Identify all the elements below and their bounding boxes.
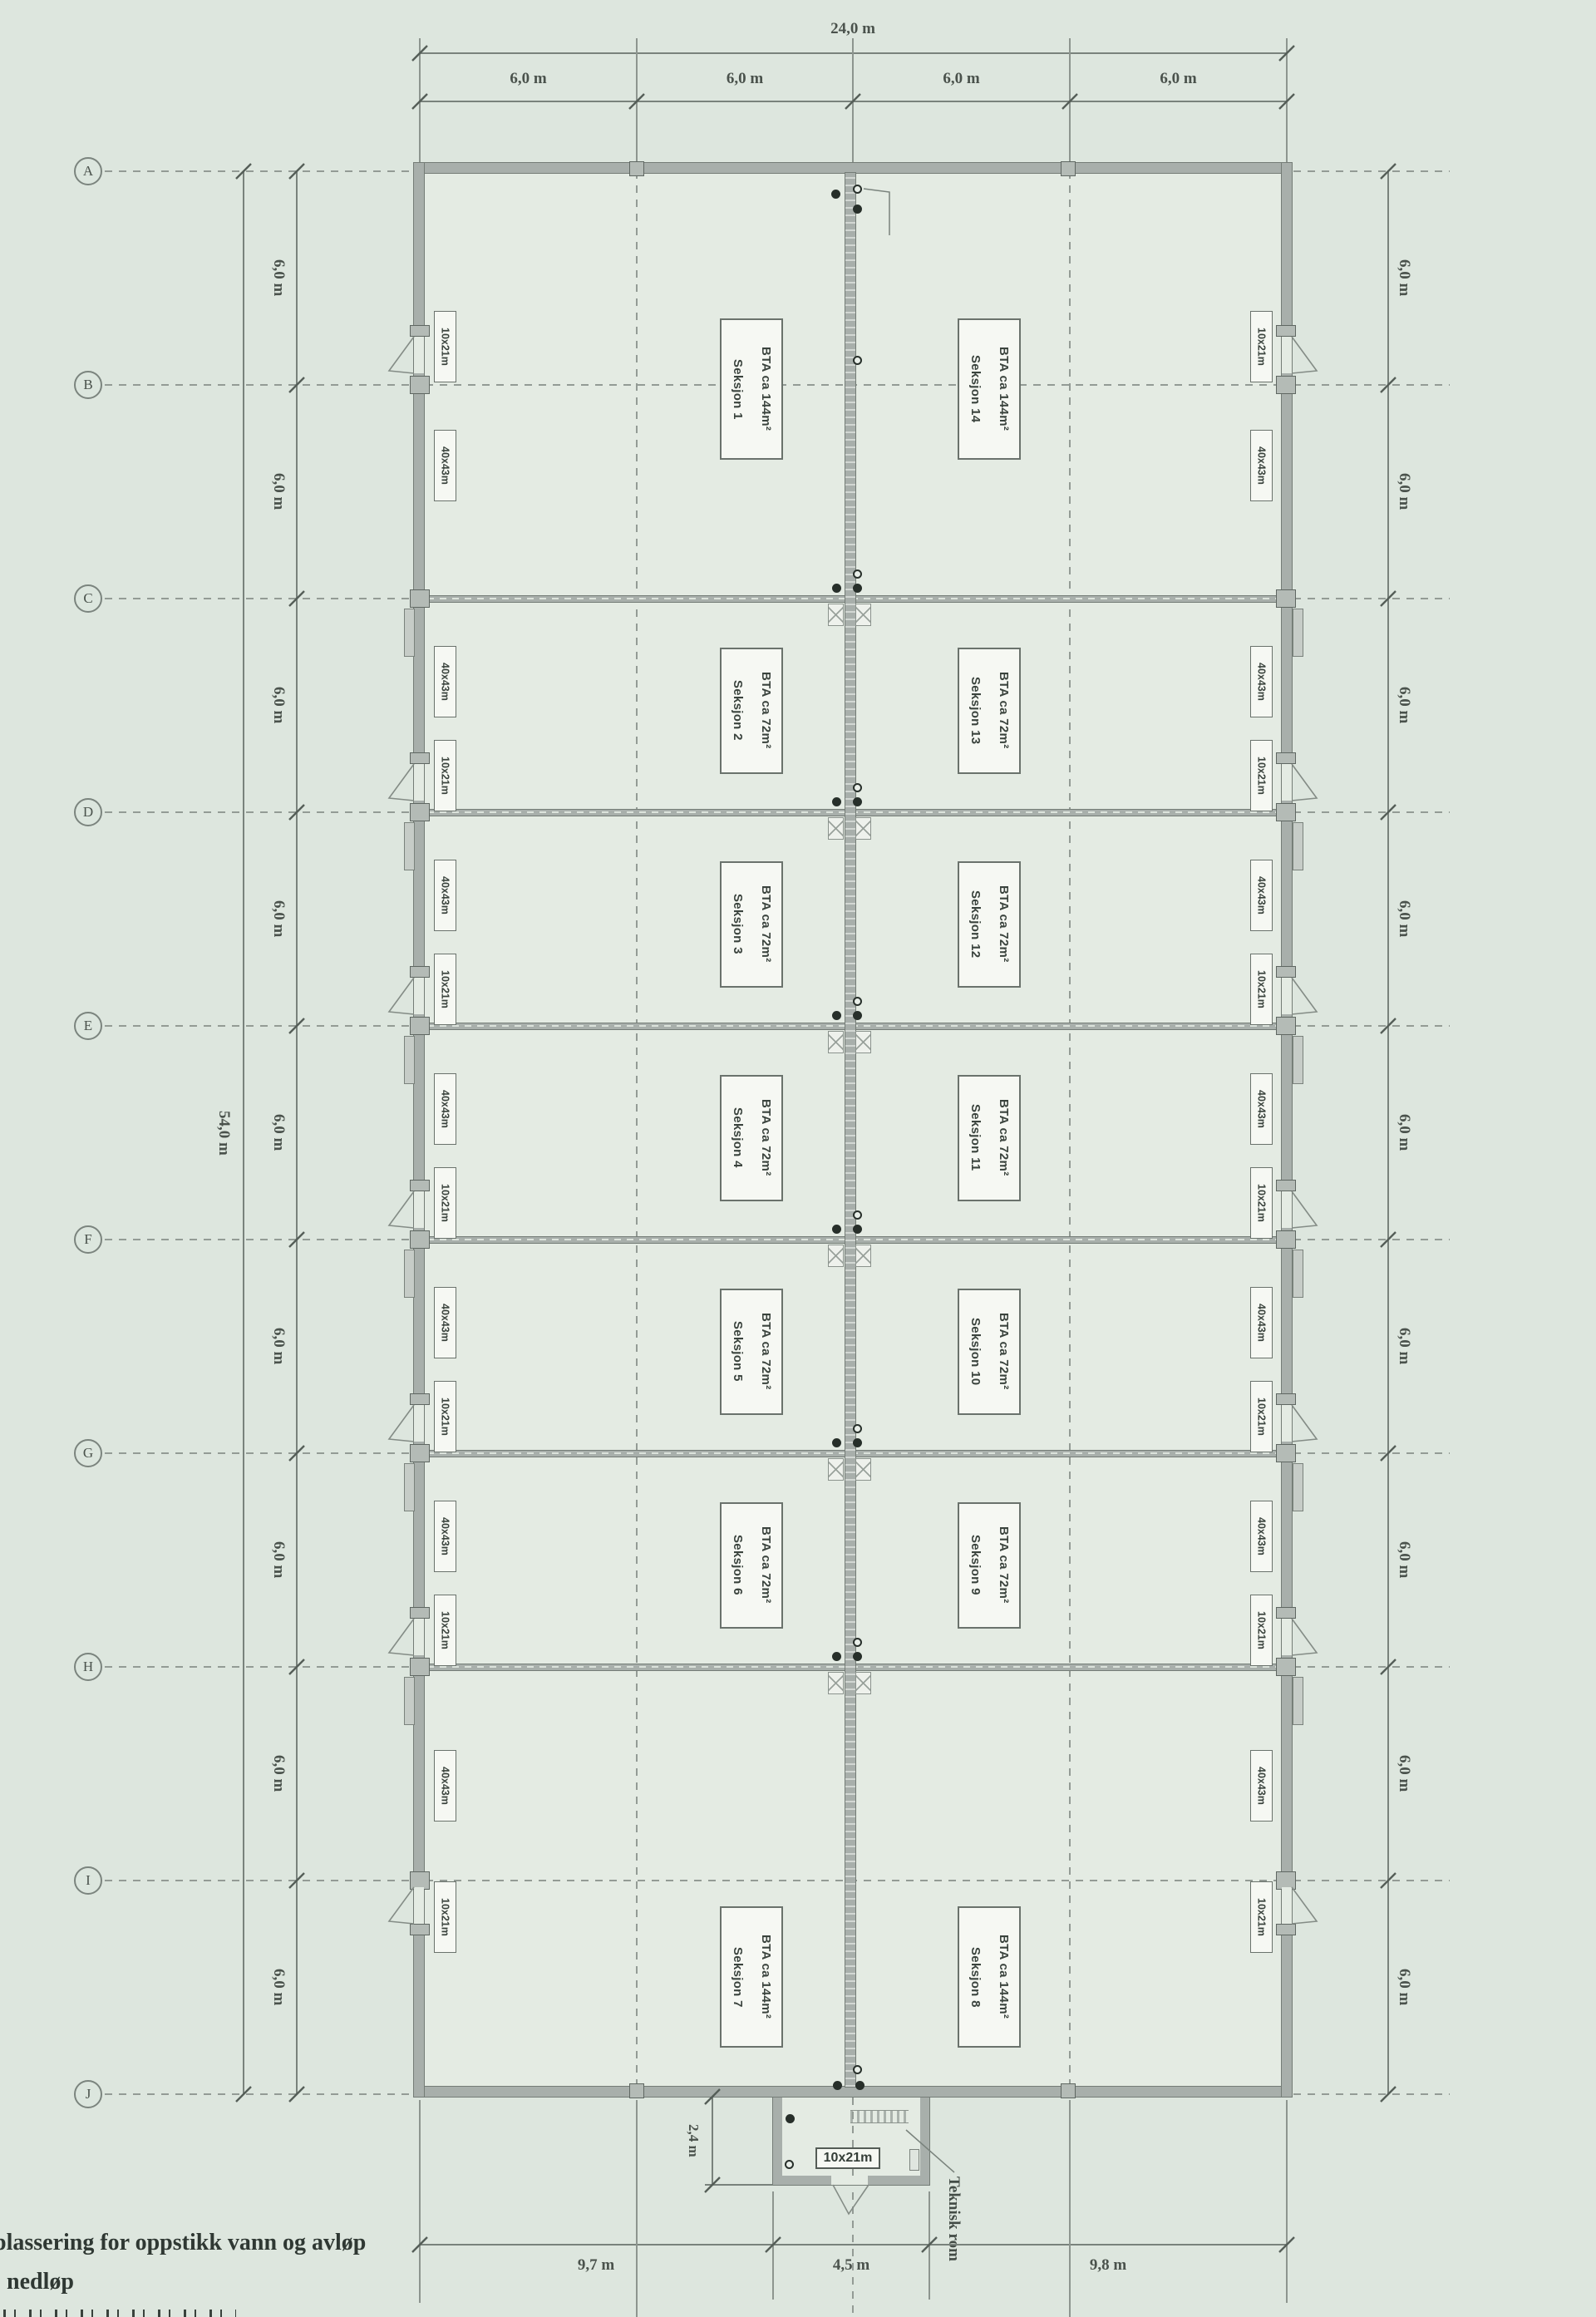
dim-line-left-bays xyxy=(296,171,298,2094)
door-size-label: 10x21m xyxy=(1250,1167,1273,1239)
gate-size-label: 40x43m xyxy=(1250,1750,1273,1822)
teknisk-rom-door-opening xyxy=(831,2176,868,2185)
door-jamb xyxy=(1276,1393,1296,1405)
door-swing-icon xyxy=(1292,1887,1317,1924)
grid-line-stub-right xyxy=(1293,1452,1450,1454)
dim-right-bay: 6,0 m xyxy=(1395,674,1415,737)
oppstikk-dot-icon xyxy=(786,2114,795,2123)
door-jamb xyxy=(410,1393,430,1405)
door-jamb xyxy=(410,1607,430,1619)
facade-panel xyxy=(404,1250,415,1298)
extension-line-bottom xyxy=(929,2191,930,2300)
section-label: Seksjon 6BTA ca 72m² xyxy=(720,1502,783,1629)
oppstikk-dot-icon xyxy=(832,797,841,806)
wall-pilaster xyxy=(1276,1444,1296,1462)
door-swing-icon xyxy=(389,1191,414,1228)
door-swing-icon xyxy=(1292,1619,1317,1655)
door-size-label: 10x21m xyxy=(1250,1381,1273,1452)
door-opening xyxy=(414,1405,424,1442)
shaft-crosshatch-icon xyxy=(828,604,844,626)
gate-size-label: 40x43m xyxy=(1250,1501,1273,1572)
door-jamb xyxy=(410,1180,430,1191)
grid-line-stub-right xyxy=(1293,1239,1450,1240)
wall-pilaster xyxy=(410,1017,430,1035)
section-label-text: Seksjon 11BTA ca 72m² xyxy=(961,1099,1017,1176)
door-jamb xyxy=(1276,1180,1296,1191)
extension-line-bottom xyxy=(1069,2100,1071,2317)
door-opening xyxy=(414,764,424,801)
door-opening xyxy=(414,337,424,373)
wall-pilaster xyxy=(1276,589,1296,608)
dim-line-bottom xyxy=(420,2244,1287,2246)
door-size-label: 10x21m xyxy=(434,1167,456,1239)
dim-top-bay: 6,0 m xyxy=(929,70,995,88)
nedlop-circle-icon xyxy=(853,1210,862,1220)
exterior-wall-bottom xyxy=(414,2087,1292,2097)
grid-line-stub-right xyxy=(1293,384,1450,386)
dim-right-bay: 6,0 m xyxy=(1395,1956,1415,2019)
door-opening xyxy=(1282,1887,1292,1924)
section-label-text: Seksjon 12BTA ca 72m² xyxy=(961,885,1017,963)
door-jamb xyxy=(1276,1607,1296,1619)
wall-pilaster xyxy=(1061,2083,1076,2098)
grid-line-stub-left xyxy=(105,1452,412,1454)
grid-bubble-f: F xyxy=(74,1225,102,1254)
grid-line-stub-left xyxy=(105,384,412,386)
wall-pilaster xyxy=(410,1658,430,1676)
grid-line-stub-right xyxy=(1293,1025,1450,1027)
extension-line-bottom xyxy=(772,2191,774,2300)
door-size-label: 10x21m xyxy=(1250,1881,1273,1953)
nedlop-circle-icon xyxy=(853,2065,862,2074)
section-label: Seksjon 12BTA ca 72m² xyxy=(958,861,1021,988)
section-label-text: Seksjon 10BTA ca 72m² xyxy=(961,1313,1017,1390)
grid-bubble-e: E xyxy=(74,1012,102,1040)
gate-size-label: 40x43m xyxy=(1250,860,1273,931)
shaft-crosshatch-icon xyxy=(828,1458,844,1481)
door-size-label: 10x21m xyxy=(434,1595,456,1666)
door-opening xyxy=(1282,1191,1292,1228)
dim-right-bay: 6,0 m xyxy=(1395,247,1415,310)
dim-left-bay: 6,0 m xyxy=(269,247,289,310)
gate-size-label: 40x43m xyxy=(434,1750,456,1822)
door-swing-icon xyxy=(389,1887,414,1924)
grid-bubble-a: A xyxy=(74,157,102,185)
door-jamb xyxy=(410,325,430,337)
shaft-crosshatch-icon xyxy=(855,1031,871,1053)
gate-size-label: 40x43m xyxy=(434,1501,456,1572)
shaft-crosshatch-icon xyxy=(855,1458,871,1481)
grid-line-stub-left xyxy=(105,1880,412,1881)
nedlop-circle-icon xyxy=(853,783,862,792)
exterior-wall-left xyxy=(414,163,424,2097)
dim-bottom-left: 9,7 m xyxy=(563,2256,629,2275)
grid-line-stub-right xyxy=(1293,811,1450,813)
dim-teknisk-depth: 2,4 m xyxy=(685,2114,705,2167)
nedlop-circle-icon xyxy=(785,2160,794,2169)
extension-line-teknisk xyxy=(705,2184,773,2186)
dim-left-bay: 6,0 m xyxy=(269,1315,289,1378)
nedlop-circle-icon xyxy=(853,569,862,579)
oppstikk-dot-icon xyxy=(832,584,841,593)
door-size-label: 10x21m xyxy=(434,311,456,382)
gate-size-label: 40x43m xyxy=(1250,646,1273,717)
door-opening xyxy=(1282,978,1292,1014)
legend-item-clipped xyxy=(3,2310,236,2317)
grid-line-stub-right xyxy=(1293,598,1450,599)
door-opening xyxy=(1282,1619,1292,1655)
door-opening xyxy=(414,1191,424,1228)
grid-bubble-b: B xyxy=(74,371,102,399)
dim-total-height: 54,0 m xyxy=(214,1083,236,1183)
legend-item-nedlop: nedløp xyxy=(7,2269,74,2295)
section-label-text: Seksjon 4BTA ca 72m² xyxy=(723,1099,780,1176)
section-label-text: Seksjon 9BTA ca 72m² xyxy=(961,1526,1017,1604)
facade-panel xyxy=(1293,609,1303,657)
door-jamb xyxy=(410,1924,430,1935)
door-opening xyxy=(414,1887,424,1924)
door-size-label: 10x21m xyxy=(434,740,456,811)
grid-line-stub-right xyxy=(1293,1666,1450,1668)
door-jamb xyxy=(410,752,430,764)
door-swing-icon xyxy=(389,337,414,373)
oppstikk-dot-icon xyxy=(853,1652,862,1661)
facade-panel xyxy=(1293,1463,1303,1511)
extension-line-top xyxy=(419,38,421,163)
dim-right-bay: 6,0 m xyxy=(1395,461,1415,524)
dim-left-bay: 6,0 m xyxy=(269,1956,289,2019)
teknisk-rom-annotation: Teknisk rom xyxy=(944,2177,969,2293)
section-label-text: Seksjon 6BTA ca 72m² xyxy=(723,1526,780,1604)
door-swing-icon xyxy=(1292,764,1317,801)
facade-panel xyxy=(1293,1677,1303,1725)
door-swing-icon xyxy=(389,1619,414,1655)
oppstikk-dot-icon xyxy=(855,2081,864,2090)
facade-panel xyxy=(1293,822,1303,870)
facade-panel xyxy=(1293,1250,1303,1298)
door-size-label: 10x21m xyxy=(434,954,456,1025)
door-opening xyxy=(414,1619,424,1655)
section-label-text: Seksjon 14BTA ca 144m² xyxy=(961,347,1017,431)
grid-bubble-i: I xyxy=(74,1866,102,1895)
door-size-label: 10x21m xyxy=(434,1381,456,1452)
wall-pilaster xyxy=(1276,803,1296,821)
grid-line-stub-right xyxy=(1293,2093,1450,2095)
oppstikk-dot-icon xyxy=(853,1011,862,1020)
wall-pilaster xyxy=(1061,161,1076,176)
dim-right-bay: 6,0 m xyxy=(1395,1529,1415,1592)
grid-line-stub-right xyxy=(1293,170,1450,172)
grid-bubble-j: J xyxy=(74,2080,102,2108)
section-label: Seksjon 1BTA ca 144m² xyxy=(720,318,783,460)
grid-bubble-h: H xyxy=(74,1653,102,1681)
section-label: Seksjon 13BTA ca 72m² xyxy=(958,648,1021,774)
shaft-crosshatch-icon xyxy=(828,1245,844,1267)
extension-line-top xyxy=(636,38,638,163)
wall-pilaster xyxy=(410,1230,430,1249)
section-label: Seksjon 2BTA ca 72m² xyxy=(720,648,783,774)
oppstikk-dot-icon xyxy=(832,1011,841,1020)
dim-total-width: 24,0 m xyxy=(803,20,903,38)
grid-line-vertical xyxy=(636,173,638,2087)
grid-line-stub-left xyxy=(105,1025,412,1027)
door-opening xyxy=(1282,764,1292,801)
dim-right-bay: 6,0 m xyxy=(1395,1743,1415,1806)
party-wall xyxy=(845,173,855,2087)
grid-line-stub-left xyxy=(105,1239,412,1240)
dim-right-bay: 6,0 m xyxy=(1395,888,1415,951)
facade-panel xyxy=(404,1463,415,1511)
wall-pilaster xyxy=(1276,1230,1296,1249)
wall-pilaster xyxy=(410,376,430,394)
gate-size-label: 40x43m xyxy=(1250,1287,1273,1358)
grid-line-centre xyxy=(852,2188,854,2313)
wall-pilaster xyxy=(410,1444,430,1462)
gate-size-label: 40x43m xyxy=(1250,1073,1273,1145)
door-opening xyxy=(414,978,424,1014)
door-size-label: 10x21m xyxy=(1250,311,1273,382)
gate-size-label: 40x43m xyxy=(434,1287,456,1358)
dim-left-bay: 6,0 m xyxy=(269,1529,289,1592)
door-size-label: 10x21m xyxy=(1250,954,1273,1025)
door-swing-icon xyxy=(1292,1405,1317,1442)
door-opening xyxy=(1282,1405,1292,1442)
nedlop-circle-icon xyxy=(853,1424,862,1433)
gate-size-label: 40x43m xyxy=(434,1073,456,1145)
door-opening xyxy=(1282,337,1292,373)
oppstikk-dot-icon xyxy=(853,1225,862,1234)
door-swing-icon xyxy=(1292,1191,1317,1228)
section-label: Seksjon 9BTA ca 72m² xyxy=(958,1502,1021,1629)
grid-line-stub-left xyxy=(105,598,412,599)
oppstikk-dot-icon xyxy=(853,584,862,593)
dim-line-teknisk-depth xyxy=(712,2094,713,2185)
exterior-wall-top xyxy=(414,163,1292,173)
door-jamb xyxy=(1276,966,1296,978)
extension-line-bottom xyxy=(636,2100,638,2317)
facade-panel xyxy=(404,1677,415,1725)
oppstikk-dot-icon xyxy=(833,2081,842,2090)
dim-left-bay: 6,0 m xyxy=(269,674,289,737)
extension-line-top xyxy=(1286,38,1288,163)
oppstikk-dot-icon xyxy=(853,797,862,806)
shaft-crosshatch-icon xyxy=(855,817,871,840)
door-size-label: 10x21m xyxy=(434,1881,456,1953)
dim-right-bay: 6,0 m xyxy=(1395,1315,1415,1378)
exterior-wall-right xyxy=(1282,163,1292,2097)
section-label-text: Seksjon 5BTA ca 72m² xyxy=(723,1313,780,1390)
section-label: Seksjon 11BTA ca 72m² xyxy=(958,1075,1021,1201)
door-size-label: 10x21m xyxy=(1250,740,1273,811)
shaft-crosshatch-icon xyxy=(855,1672,871,1694)
dim-right-bay: 6,0 m xyxy=(1395,1102,1415,1165)
grid-line-stub-left xyxy=(105,170,412,172)
facade-panel xyxy=(404,1036,415,1084)
grid-bubble-c: C xyxy=(74,584,102,613)
nedlop-circle-icon xyxy=(853,1638,862,1647)
door-jamb xyxy=(1276,752,1296,764)
oppstikk-dot-icon xyxy=(832,1225,841,1234)
oppstikk-dot-icon xyxy=(853,205,862,214)
grid-bubble-d: D xyxy=(74,798,102,826)
door-swing-icon xyxy=(1292,978,1317,1014)
section-label: Seksjon 14BTA ca 144m² xyxy=(958,318,1021,460)
oppstikk-dot-icon xyxy=(853,1438,862,1447)
section-label: Seksjon 4BTA ca 72m² xyxy=(720,1075,783,1201)
door-swing-icon xyxy=(389,764,414,801)
legend-item-oppstikk: plassering for oppstikk vann og avløp xyxy=(0,2230,366,2256)
grid-line-stub-left xyxy=(105,1666,412,1668)
door-jamb xyxy=(1276,325,1296,337)
wall-pilaster xyxy=(1276,1658,1296,1676)
section-label-text: Seksjon 1BTA ca 144m² xyxy=(723,347,780,431)
nedlop-circle-icon xyxy=(853,356,862,365)
section-label: Seksjon 10BTA ca 72m² xyxy=(958,1289,1021,1415)
vent-grille-icon xyxy=(850,2110,909,2123)
door-jamb xyxy=(1276,1924,1296,1935)
section-label: Seksjon 7BTA ca 144m² xyxy=(720,1906,783,2048)
door-jamb xyxy=(410,966,430,978)
shaft-crosshatch-icon xyxy=(828,1031,844,1053)
dim-line-left-total xyxy=(243,171,244,2094)
dim-left-bay: 6,0 m xyxy=(269,888,289,951)
wall-pilaster xyxy=(410,589,430,608)
teknisk-size-label: 10x21m xyxy=(815,2147,880,2169)
oppstikk-dot-icon xyxy=(831,190,840,199)
gate-size-label: 40x43m xyxy=(434,430,456,501)
door-size-label: 10x21m xyxy=(1250,1595,1273,1666)
section-label-text: Seksjon 7BTA ca 144m² xyxy=(723,1935,780,2019)
section-label-text: Seksjon 2BTA ca 72m² xyxy=(723,672,780,749)
door-swing-icon xyxy=(1292,337,1317,373)
gate-size-label: 40x43m xyxy=(434,860,456,931)
facade-panel xyxy=(1293,1036,1303,1084)
extension-line-bottom xyxy=(419,2100,421,2303)
oppstikk-dot-icon xyxy=(832,1652,841,1661)
facade-panel xyxy=(404,609,415,657)
wall-pilaster xyxy=(410,803,430,821)
grid-line-vertical xyxy=(1069,173,1071,2087)
gate-size-label: 40x43m xyxy=(434,646,456,717)
extension-line-top xyxy=(852,38,854,163)
door-swing-icon xyxy=(389,978,414,1014)
grid-line-stub-right xyxy=(1293,1880,1450,1881)
dim-line-right-bays xyxy=(1387,171,1389,2094)
dim-left-bay: 6,0 m xyxy=(269,1743,289,1806)
section-label-text: Seksjon 3BTA ca 72m² xyxy=(723,885,780,963)
facade-panel xyxy=(404,822,415,870)
nedlop-circle-icon xyxy=(853,185,862,194)
section-label: Seksjon 3BTA ca 72m² xyxy=(720,861,783,988)
section-label: Seksjon 8BTA ca 144m² xyxy=(958,1906,1021,2048)
gate-size-label: 40x43m xyxy=(1250,430,1273,501)
dim-left-bay: 6,0 m xyxy=(269,461,289,524)
dim-top-bay: 6,0 m xyxy=(495,70,562,88)
extension-line-bottom xyxy=(1286,2100,1288,2303)
section-label-text: Seksjon 13BTA ca 72m² xyxy=(961,672,1017,749)
shaft-crosshatch-icon xyxy=(855,604,871,626)
wall-pilaster xyxy=(1276,1017,1296,1035)
grid-line-stub-left xyxy=(105,2093,412,2095)
oppstikk-dot-icon xyxy=(832,1438,841,1447)
wall-pilaster xyxy=(629,161,644,176)
dim-bottom-right: 9,8 m xyxy=(1075,2256,1141,2275)
door-swing-icon xyxy=(833,2185,869,2214)
fixture-icon xyxy=(909,2149,919,2171)
dim-top-bay: 6,0 m xyxy=(712,70,778,88)
wall-pilaster xyxy=(629,2083,644,2098)
dim-top-bay: 6,0 m xyxy=(1145,70,1212,88)
door-swing-icon xyxy=(389,1405,414,1442)
grid-bubble-g: G xyxy=(74,1439,102,1467)
extension-line-top xyxy=(1069,38,1071,163)
shaft-crosshatch-icon xyxy=(855,1245,871,1267)
dim-left-bay: 6,0 m xyxy=(269,1102,289,1165)
floor-plan-canvas: 24,0 m 54,0 m 9,7 m 4,5 m 9,8 m 2,4 m lu… xyxy=(0,0,1596,2317)
wall-pilaster xyxy=(1276,376,1296,394)
shaft-crosshatch-icon xyxy=(828,1672,844,1694)
section-label: Seksjon 5BTA ca 72m² xyxy=(720,1289,783,1415)
dim-bottom-middle: 4,5 m xyxy=(818,2256,884,2275)
section-label-text: Seksjon 8BTA ca 144m² xyxy=(961,1935,1017,2019)
shaft-crosshatch-icon xyxy=(828,817,844,840)
nedlop-circle-icon xyxy=(853,997,862,1006)
grid-line-stub-left xyxy=(105,811,412,813)
